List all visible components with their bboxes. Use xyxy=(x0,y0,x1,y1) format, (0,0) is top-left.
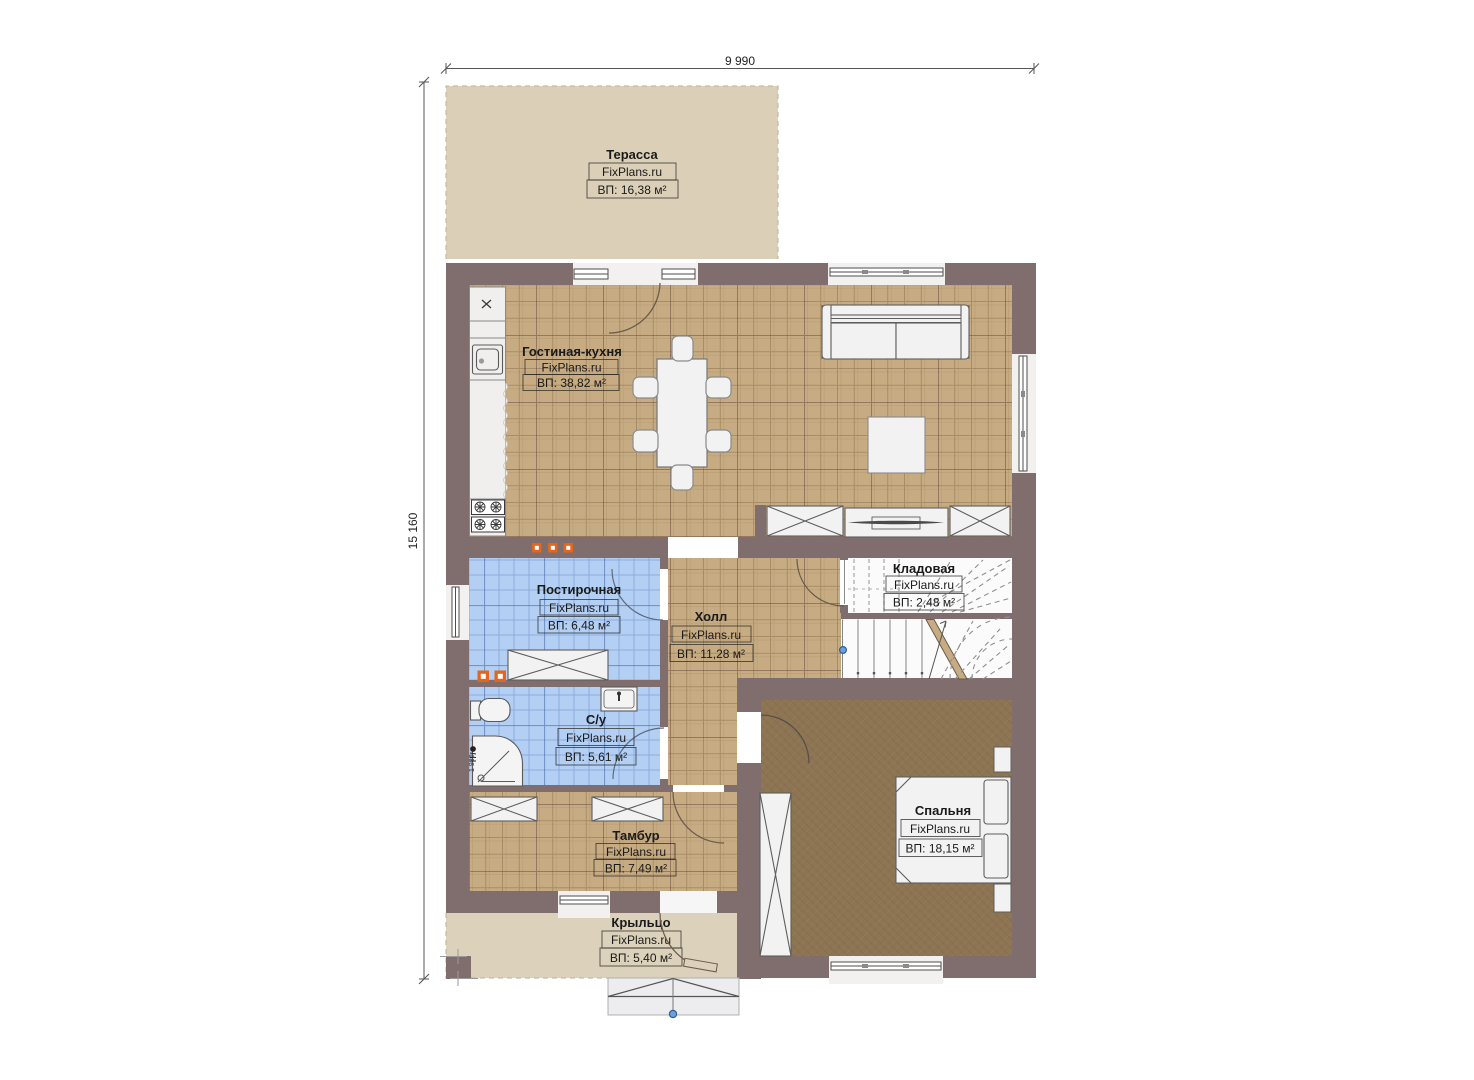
svg-text:ВП: 7,49 м²: ВП: 7,49 м² xyxy=(605,862,667,876)
svg-text:Холл: Холл xyxy=(695,609,728,624)
svg-text:FixPlans.ru: FixPlans.ru xyxy=(611,933,671,947)
svg-text:FixPlans.ru: FixPlans.ru xyxy=(910,822,970,836)
svg-text:FixPlans.ru: FixPlans.ru xyxy=(541,361,601,375)
svg-text:FixPlans.ru: FixPlans.ru xyxy=(602,165,662,179)
svg-text:Спальня: Спальня xyxy=(915,803,971,818)
svg-text:Терасса: Терасса xyxy=(606,147,658,162)
svg-text:FixPlans.ru: FixPlans.ru xyxy=(549,601,609,615)
svg-text:ВП: 6,48 м²: ВП: 6,48 м² xyxy=(548,619,610,633)
svg-text:1 930: 1 930 xyxy=(469,754,476,772)
svg-text:FixPlans.ru: FixPlans.ru xyxy=(681,628,741,642)
svg-text:15 160: 15 160 xyxy=(406,512,420,549)
svg-text:С/у: С/у xyxy=(586,712,607,727)
svg-text:Гостиная-кухня: Гостиная-кухня xyxy=(522,344,622,359)
svg-text:FixPlans.ru: FixPlans.ru xyxy=(566,731,626,745)
svg-text:ВП: 38,82 м²: ВП: 38,82 м² xyxy=(537,376,606,390)
svg-text:ВП: 2,48 м²: ВП: 2,48 м² xyxy=(893,596,955,610)
svg-text:Кладовая: Кладовая xyxy=(893,561,955,576)
svg-text:ВП: 5,40 м²: ВП: 5,40 м² xyxy=(610,951,672,965)
svg-text:ВП: 16,38 м²: ВП: 16,38 м² xyxy=(598,183,667,197)
svg-text:FixPlans.ru: FixPlans.ru xyxy=(606,845,666,859)
svg-text:Тамбур: Тамбур xyxy=(612,828,659,843)
svg-text:Постирочная: Постирочная xyxy=(537,582,621,597)
svg-text:9 990: 9 990 xyxy=(725,54,755,68)
svg-text:ВП: 18,15 м²: ВП: 18,15 м² xyxy=(906,842,975,856)
svg-text:ВП: 11,28 м²: ВП: 11,28 м² xyxy=(677,647,745,661)
svg-text:ВП: 5,61 м²: ВП: 5,61 м² xyxy=(565,750,627,764)
svg-text:FixPlans.ru: FixPlans.ru xyxy=(894,578,954,592)
